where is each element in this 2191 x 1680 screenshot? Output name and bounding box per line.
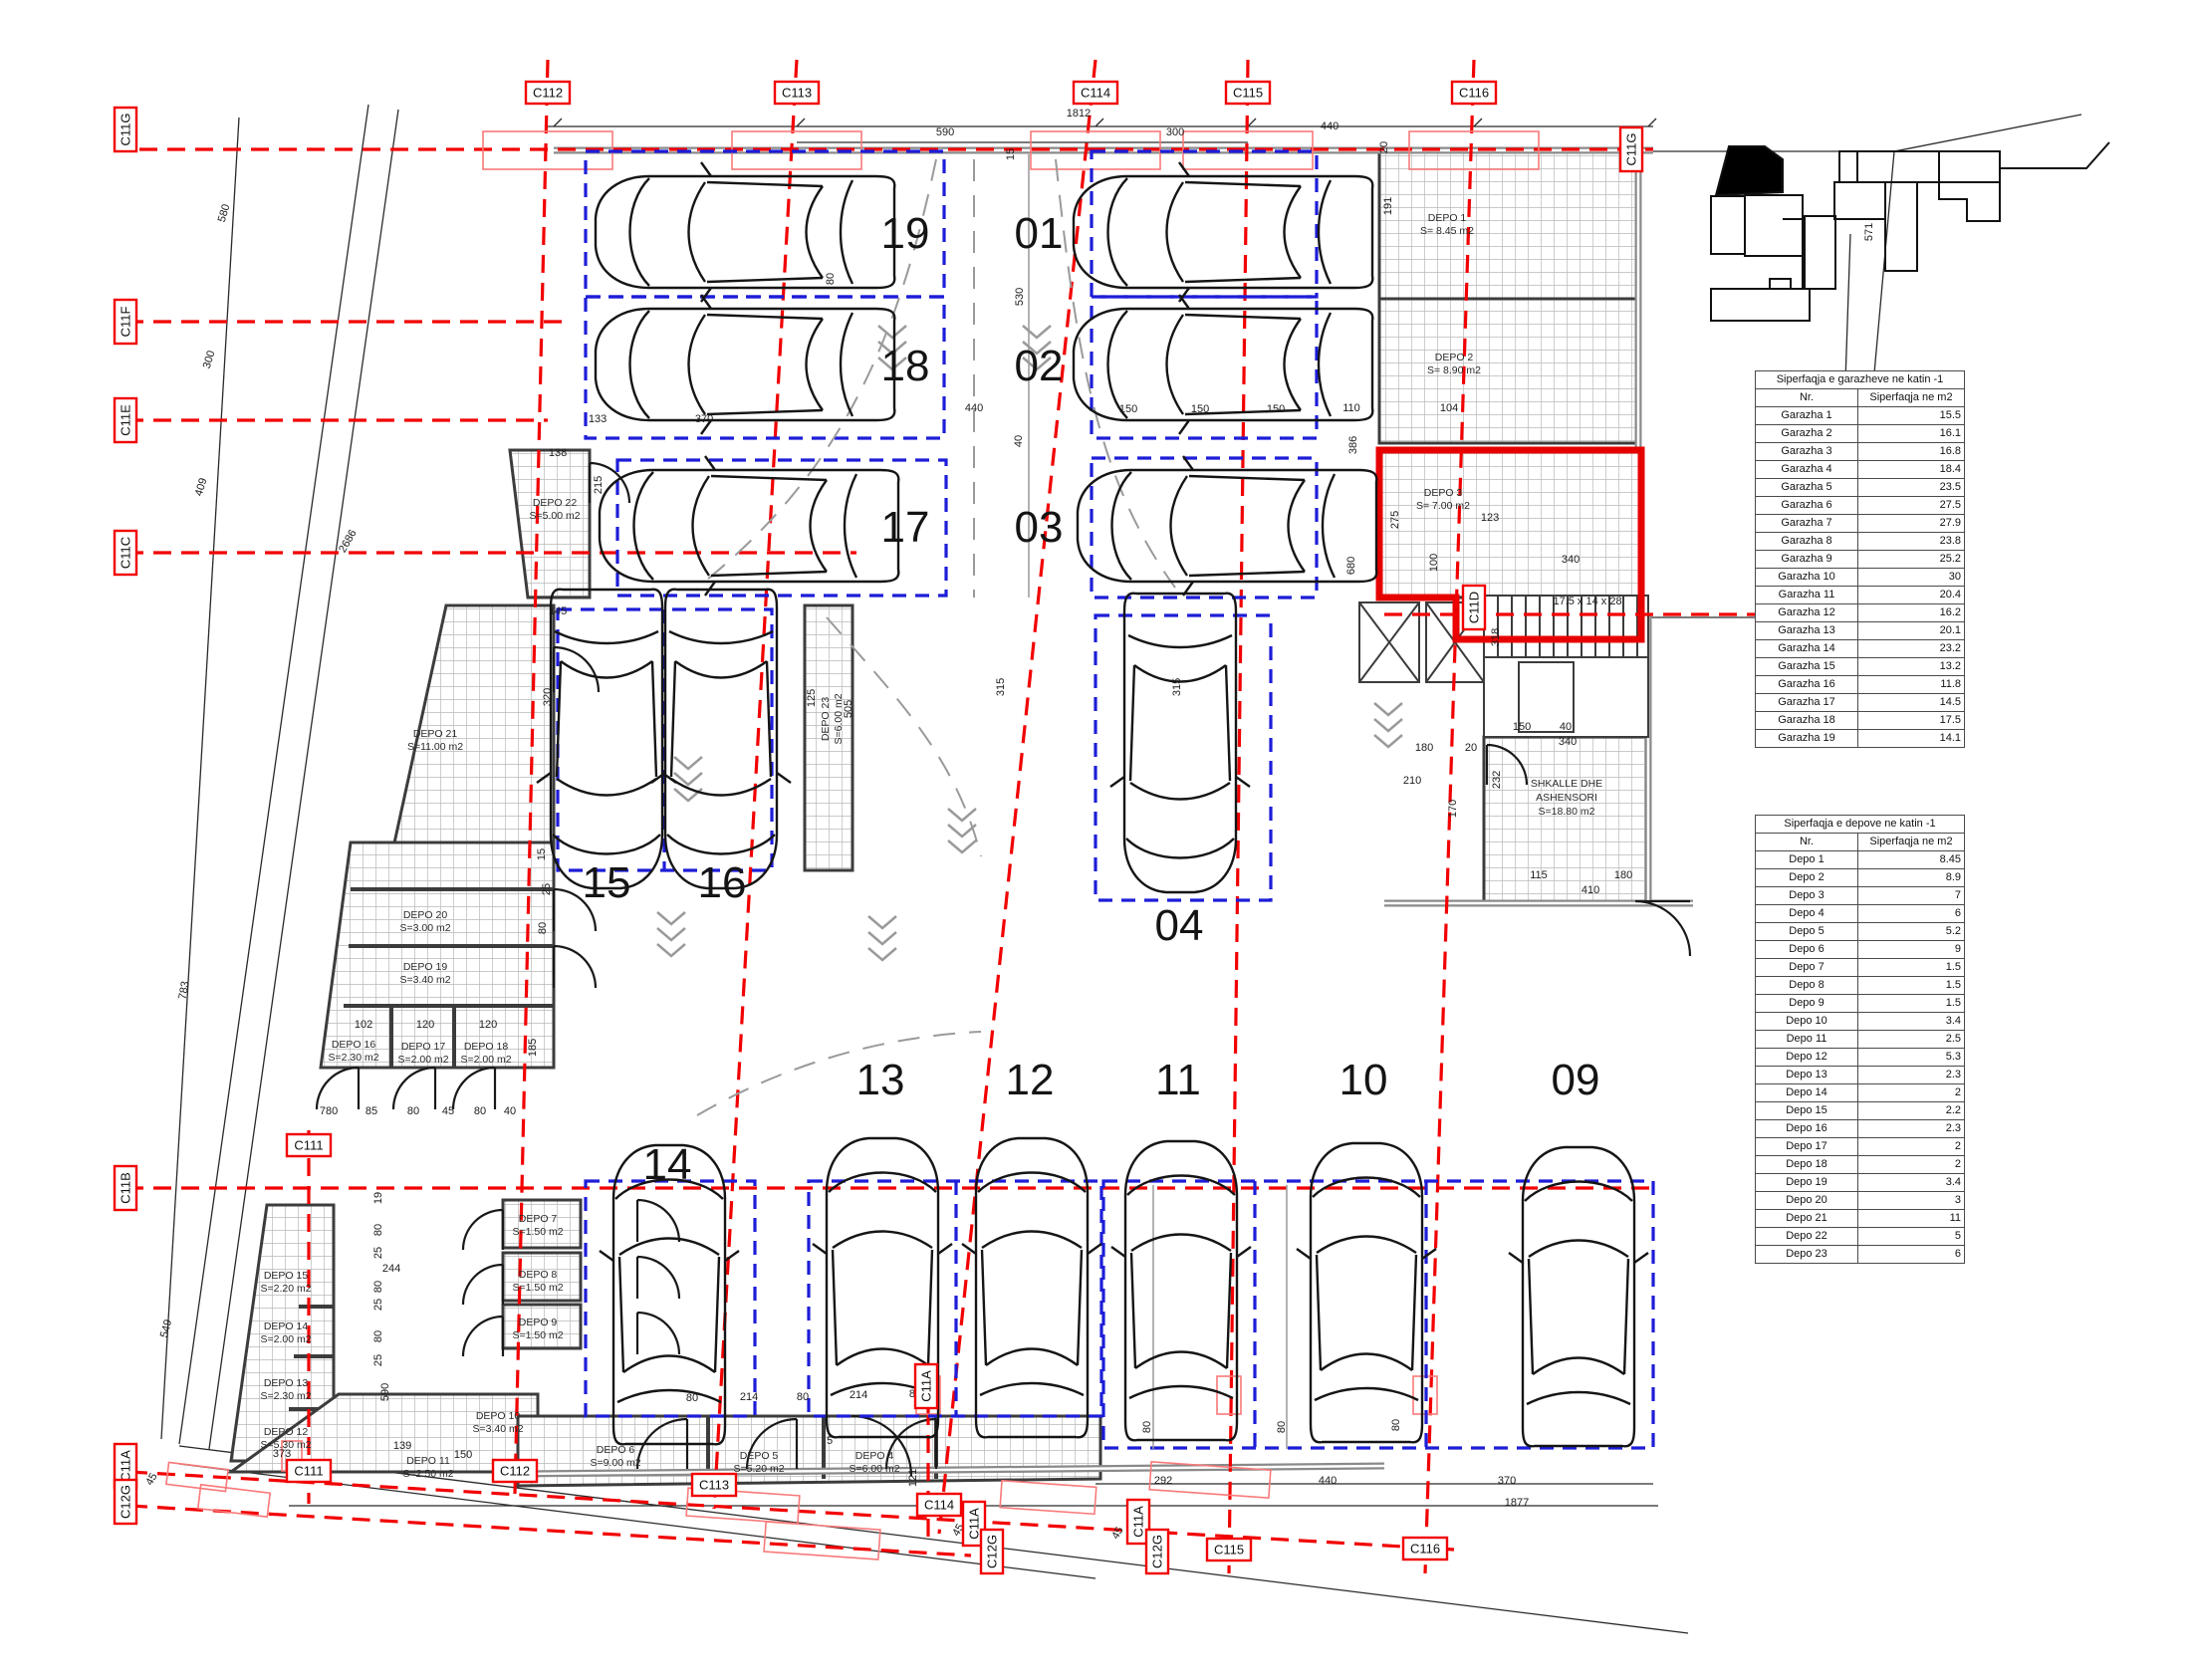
depot-table-row: Depo 203 (1756, 1192, 1965, 1210)
row-area: 2 (1858, 1138, 1965, 1156)
svg-text:C111: C111 (294, 1464, 323, 1479)
parking-space-number: 09 (1552, 1056, 1600, 1104)
dimension-label: 125 (806, 689, 818, 707)
dimension-label: 80 (1390, 1419, 1402, 1431)
garage-area-table: Siperfaqja e garazheve ne katin -1 Nr. S… (1755, 370, 1965, 748)
depot-label: DEPO 4S=6.00 m2 (849, 1450, 899, 1475)
depot-table-row: Depo 55.2 (1756, 923, 1965, 941)
svg-text:C111: C111 (294, 1138, 323, 1153)
svg-text:S=2.00 m2: S=2.00 m2 (260, 1333, 311, 1345)
dimension-label: 45 (1109, 1525, 1126, 1542)
row-nr: Depo 9 (1756, 995, 1858, 1013)
row-nr: Depo 18 (1756, 1156, 1858, 1174)
row-nr: Garazha 12 (1756, 604, 1858, 622)
row-area: 7 (1858, 887, 1965, 905)
grid-marker: C11B (115, 1166, 136, 1210)
row-area: 5.2 (1858, 923, 1965, 941)
svg-text:C11A: C11A (1131, 1506, 1146, 1538)
parking-space-number: 03 (1015, 503, 1064, 552)
svg-text:DEPO 14: DEPO 14 (264, 1320, 309, 1332)
dimension-label: 780 (320, 1105, 338, 1117)
dimension-label: 1877 (1505, 1497, 1529, 1509)
svg-text:DEPO 22: DEPO 22 (533, 497, 578, 509)
dimension-label: 530 (1014, 288, 1026, 306)
dimension-label: 340 (1562, 554, 1580, 566)
depot-table-row: Depo 225 (1756, 1228, 1965, 1246)
row-nr: Garazha 18 (1756, 712, 1858, 730)
dimension-label: 300 (1166, 126, 1184, 138)
garage-table-row: Garazha 216.1 (1756, 425, 1965, 443)
dimension-label: 80 (686, 1392, 698, 1404)
svg-text:DEPO 12: DEPO 12 (264, 1426, 309, 1438)
dimension-label: 15 (536, 848, 548, 860)
car-top-view (651, 590, 791, 888)
dimension-label: 185 (527, 1039, 539, 1057)
row-area: 9 (1858, 941, 1965, 959)
drive-lane-guides (697, 159, 1175, 1115)
depot-table-row: Depo 37 (1756, 887, 1965, 905)
row-area: 13.2 (1858, 658, 1965, 676)
dimension-label: 590 (379, 1383, 391, 1401)
dimension-label: 680 (1345, 557, 1357, 575)
svg-text:C115: C115 (1233, 86, 1263, 101)
depot-label: DEPO 16S=2.30 m2 (328, 1039, 378, 1064)
grid-marker: C11D (1463, 586, 1485, 629)
row-nr: Depo 19 (1756, 1174, 1858, 1192)
depot-label: DEPO 10S=3.40 m2 (472, 1410, 523, 1435)
row-area: 2 (1858, 1156, 1965, 1174)
row-area: 2.2 (1858, 1102, 1965, 1120)
dimension-label: 85 (365, 1105, 377, 1117)
row-area: 5.3 (1858, 1049, 1965, 1067)
svg-text:C116: C116 (1410, 1542, 1440, 1557)
dimension-label: 370 (695, 413, 713, 425)
depot-table-row: Depo 28.9 (1756, 869, 1965, 887)
dimension-label: 120 (416, 1019, 434, 1031)
row-area: 16.2 (1858, 604, 1965, 622)
svg-text:C112: C112 (533, 86, 563, 101)
depot-table-col-area: Siperfaqja ne m2 (1858, 834, 1965, 851)
svg-text:S=2.20 m2: S=2.20 m2 (260, 1283, 311, 1295)
dimension-label: 292 (1154, 1475, 1172, 1487)
garage-table-row: Garazha 727.9 (1756, 515, 1965, 533)
dimension-label: 80 (1276, 1421, 1288, 1433)
row-nr: Garazha 5 (1756, 479, 1858, 497)
grid-marker: C11G (1620, 127, 1642, 171)
row-area: 3.4 (1858, 1174, 1965, 1192)
depot-table-row: Depo 18.45 (1756, 851, 1965, 869)
depot-label: DEPO 19S=3.40 m2 (399, 961, 450, 986)
dimension-label: 25 (372, 1354, 384, 1366)
depot-label: DEPO 11S=2.50 m2 (402, 1455, 453, 1480)
row-area: 27.9 (1858, 515, 1965, 533)
svg-text:DEPO 13: DEPO 13 (264, 1377, 309, 1389)
dimension-label: 214 (850, 1389, 867, 1401)
row-nr: Garazha 4 (1756, 461, 1858, 479)
row-nr: Garazha 2 (1756, 425, 1858, 443)
depot-table-row: Depo 81.5 (1756, 977, 1965, 995)
dimension-label: 150 (1513, 721, 1531, 733)
parking-space-number: 12 (1006, 1056, 1055, 1104)
dimension-label: 180 (1614, 869, 1632, 881)
stair-core-label: ASHENSORI (1536, 792, 1597, 804)
dimension-label: 590 (936, 126, 954, 138)
grid-marker: C115 (1207, 1539, 1251, 1560)
dimension-label: 80 (372, 1224, 384, 1236)
svg-text:C114: C114 (1081, 86, 1110, 101)
row-nr: Depo 14 (1756, 1084, 1858, 1102)
grid-marker: C114 (1074, 82, 1117, 104)
car-top-view (600, 1145, 739, 1444)
car-top-view (1509, 1147, 1648, 1446)
stair-core (1359, 596, 1648, 737)
depot-label: DEPO 22S=5.00 m2 (529, 497, 580, 522)
row-area: 3 (1858, 1192, 1965, 1210)
svg-text:S=2.50 m2: S=2.50 m2 (402, 1468, 453, 1480)
grid-marker: C112 (526, 82, 570, 104)
depot-label: DEPO 1S= 8.45 m2 (1420, 212, 1474, 237)
depot-label: DEPO 14S=2.00 m2 (260, 1320, 311, 1345)
svg-text:S=5.00 m2: S=5.00 m2 (529, 510, 580, 522)
svg-text:S=2.30 m2: S=2.30 m2 (328, 1052, 378, 1064)
dimension-label: 45 (442, 1105, 454, 1117)
dimension-label: 19 (372, 1192, 384, 1204)
garage-table-row: Garazha 316.8 (1756, 443, 1965, 461)
dimension-label: 102 (355, 1019, 372, 1031)
svg-text:DEPO 21: DEPO 21 (413, 728, 458, 740)
dimension-label: 318 (1490, 628, 1502, 646)
garage-table-row: Garazha 418.4 (1756, 461, 1965, 479)
depot-table-row: Depo 125.3 (1756, 1049, 1965, 1067)
garage-table-row: Garazha 925.2 (1756, 551, 1965, 569)
garage-table-row: Garazha 1513.2 (1756, 658, 1965, 676)
lane-divider-lines (1029, 154, 1287, 1449)
svg-text:C115: C115 (1214, 1543, 1244, 1558)
dimension-label: 320 (542, 688, 554, 706)
dimension-label: 440 (965, 402, 983, 414)
row-nr: Depo 7 (1756, 959, 1858, 977)
floor-plan-sheet: 1812590300440133370440150150150110104530… (0, 0, 2191, 1680)
row-area: 3.4 (1858, 1013, 1965, 1031)
dimension-label: 120 (479, 1019, 497, 1031)
svg-text:DEPO 16: DEPO 16 (332, 1039, 376, 1051)
row-area: 30 (1858, 569, 1965, 587)
svg-text:DEPO 9: DEPO 9 (519, 1317, 558, 1328)
svg-text:C11A: C11A (919, 1370, 934, 1402)
depot-table-col-nr: Nr. (1756, 834, 1858, 851)
grid-marker: C113 (692, 1474, 736, 1496)
row-area: 18.4 (1858, 461, 1965, 479)
depot-table-row: Depo 152.2 (1756, 1102, 1965, 1120)
row-area: 2.3 (1858, 1067, 1965, 1084)
parking-space-number: 17 (881, 503, 930, 552)
car-top-view (1111, 1141, 1251, 1440)
row-area: 11 (1858, 1210, 1965, 1228)
parking-space-number: 14 (643, 1140, 692, 1189)
depot-table-row: Depo 172 (1756, 1138, 1965, 1156)
svg-text:DEPO 23: DEPO 23 (820, 697, 832, 742)
row-nr: Garazha 11 (1756, 587, 1858, 604)
dimension-label: 244 (382, 1263, 400, 1275)
dimension-label: 2686 (337, 528, 360, 555)
parking-space-number: 15 (583, 858, 631, 907)
svg-text:C12G: C12G (119, 1485, 133, 1519)
svg-text:S=1.50 m2: S=1.50 m2 (512, 1226, 563, 1238)
car-top-view (1078, 456, 1376, 596)
svg-text:S=6.00 m2: S=6.00 m2 (833, 693, 845, 744)
svg-text:DEPO 15: DEPO 15 (264, 1270, 309, 1282)
svg-text:C11E: C11E (119, 404, 133, 436)
depot-table-row: Depo 46 (1756, 905, 1965, 923)
svg-text:DEPO 7: DEPO 7 (519, 1213, 558, 1225)
svg-text:DEPO 11: DEPO 11 (406, 1455, 450, 1467)
garage-table-row: Garazha 1120.4 (1756, 587, 1965, 604)
grid-marker: C116 (1403, 1538, 1447, 1560)
row-area: 1.5 (1858, 995, 1965, 1013)
dimension-label: 440 (1319, 1475, 1337, 1487)
row-nr: Depo 2 (1756, 869, 1858, 887)
row-nr: Garazha 7 (1756, 515, 1858, 533)
svg-text:S= 8.45 m2: S= 8.45 m2 (1420, 225, 1474, 237)
row-area: 6 (1858, 905, 1965, 923)
grid-marker: C114 (917, 1494, 961, 1516)
dimension-label: 25 (372, 1247, 384, 1259)
row-area: 6 (1858, 1246, 1965, 1264)
dimension-label: 20 (1378, 141, 1390, 153)
row-nr: Garazha 6 (1756, 497, 1858, 515)
garage-table-row: Garazha 823.8 (1756, 533, 1965, 551)
depot-label: DEPO 2S= 8.90 m2 (1427, 352, 1481, 376)
svg-text:S=3.40 m2: S=3.40 m2 (472, 1423, 523, 1435)
depot-table-row: Depo 182 (1756, 1156, 1965, 1174)
stair-core-label: SHKALLE DHE (1531, 778, 1602, 790)
depot-table-row: Depo 2111 (1756, 1210, 1965, 1228)
svg-text:S=1.50 m2: S=1.50 m2 (512, 1282, 563, 1294)
row-area: 8.45 (1858, 851, 1965, 869)
dimension-label: 370 (1498, 1475, 1516, 1487)
row-nr: Garazha 1 (1756, 407, 1858, 425)
dimension-label: 25 (372, 1299, 384, 1311)
car-top-view (962, 1138, 1101, 1437)
svg-text:S=1.50 m2: S=1.50 m2 (512, 1329, 563, 1341)
svg-text:DEPO 4: DEPO 4 (855, 1450, 894, 1462)
row-nr: Garazha 13 (1756, 622, 1858, 640)
grid-marker: C11A (915, 1364, 937, 1408)
depot-table-row: Depo 162.3 (1756, 1120, 1965, 1138)
dimension-label: 1812 (1067, 108, 1091, 120)
dimension-label: 17.5 x 14 x 28 (1553, 596, 1621, 607)
dimension-label: 100 (1428, 554, 1440, 572)
grid-marker: C11E (115, 398, 136, 442)
row-area: 23.5 (1858, 479, 1965, 497)
dimension-label: 232 (1491, 771, 1503, 789)
dimension-label: 150 (454, 1449, 472, 1461)
dimension-label: 40 (1560, 721, 1572, 733)
grid-marker: C112 (493, 1460, 537, 1482)
svg-text:C11B: C11B (119, 1172, 133, 1204)
row-area: 11.8 (1858, 676, 1965, 694)
row-area: 20.1 (1858, 622, 1965, 640)
row-area: 2.5 (1858, 1031, 1965, 1049)
row-area: 15.5 (1858, 407, 1965, 425)
garage-table-row: Garazha 523.5 (1756, 479, 1965, 497)
depot-label: DEPO 13S=2.30 m2 (260, 1377, 311, 1402)
row-nr: Depo 16 (1756, 1120, 1858, 1138)
dimension-label: 5 (827, 1435, 833, 1447)
dimension-label: 180 (1415, 742, 1433, 754)
row-area: 2.3 (1858, 1120, 1965, 1138)
svg-text:S= 8.90 m2: S= 8.90 m2 (1427, 364, 1481, 376)
depot-label: DEPO 12S=5.30 m2 (260, 1426, 311, 1451)
svg-text:S=9.00 m2: S=9.00 m2 (590, 1457, 640, 1469)
row-nr: Depo 15 (1756, 1102, 1858, 1120)
row-nr: Depo 17 (1756, 1138, 1858, 1156)
row-nr: Depo 22 (1756, 1228, 1858, 1246)
garage-table-row: Garazha 627.5 (1756, 497, 1965, 515)
dimension-label: 80 (372, 1281, 384, 1293)
grid-marker: C11G (115, 108, 136, 151)
garage-table-row: Garazha 1423.2 (1756, 640, 1965, 658)
dimension-label: 110 (1342, 402, 1360, 414)
svg-text:S=2.30 m2: S=2.30 m2 (260, 1390, 311, 1402)
svg-text:C11A: C11A (967, 1508, 982, 1540)
dimension-label: 150 (1267, 403, 1285, 415)
svg-text:C116: C116 (1459, 86, 1489, 101)
dimension-label: 138 (549, 447, 567, 459)
depot-table-row: Depo 103.4 (1756, 1013, 1965, 1031)
depot-label: DEPO 21S=11.00 m2 (407, 728, 463, 753)
grid-marker: C12G (981, 1530, 1003, 1573)
row-area: 2 (1858, 1084, 1965, 1102)
dimension-label: 214 (740, 1391, 758, 1403)
parking-space-number: 11 (1155, 1056, 1201, 1104)
grid-marker: C111 (287, 1460, 331, 1482)
dimension-label: 386 (1347, 436, 1359, 454)
svg-text:DEPO 3: DEPO 3 (1424, 487, 1463, 499)
dimension-label: 133 (589, 413, 607, 425)
stair-core-label: S=18.80 m2 (1539, 806, 1595, 818)
svg-text:S=6.00 m2: S=6.00 m2 (849, 1463, 899, 1475)
garage-table-row: Garazha 1030 (1756, 569, 1965, 587)
row-nr: Garazha 10 (1756, 569, 1858, 587)
depot-table-row: Depo 236 (1756, 1246, 1965, 1264)
svg-text:C113: C113 (699, 1478, 729, 1493)
dimension-label: 123 (1481, 512, 1499, 524)
parking-space-number: 02 (1015, 342, 1064, 390)
depot-table-row: Depo 71.5 (1756, 959, 1965, 977)
dimension-label: 191 (1382, 197, 1394, 215)
depot-label: DEPO 6S=9.00 m2 (590, 1444, 640, 1469)
row-area: 16.1 (1858, 425, 1965, 443)
svg-text:DEPO 6: DEPO 6 (597, 1444, 635, 1456)
car-top-view (1110, 594, 1250, 892)
svg-text:DEPO 17: DEPO 17 (401, 1041, 446, 1053)
dimension-label: 215 (593, 476, 605, 494)
dimension-label: 210 (1403, 775, 1421, 787)
row-nr: Garazha 16 (1756, 676, 1858, 694)
row-nr: Garazha 15 (1756, 658, 1858, 676)
depot-label: DEPO 5S=5.20 m2 (733, 1450, 784, 1475)
row-area: 16.8 (1858, 443, 1965, 461)
row-area: 27.5 (1858, 497, 1965, 515)
svg-text:DEPO 19: DEPO 19 (403, 961, 448, 973)
svg-text:DEPO 5: DEPO 5 (740, 1450, 779, 1462)
depot-label: DEPO 3S= 7.00 m2 (1416, 487, 1470, 512)
svg-text:S=11.00 m2: S=11.00 m2 (407, 741, 463, 753)
garage-table-row: Garazha 115.5 (1756, 407, 1965, 425)
grid-marker: C116 (1452, 82, 1496, 104)
depot-table-row: Depo 142 (1756, 1084, 1965, 1102)
row-nr: Depo 3 (1756, 887, 1858, 905)
svg-text:S=5.30 m2: S=5.30 m2 (260, 1439, 311, 1451)
row-area: 25.2 (1858, 551, 1965, 569)
row-nr: Depo 6 (1756, 941, 1858, 959)
svg-text:C11C: C11C (119, 537, 133, 569)
depot-table-row: Depo 91.5 (1756, 995, 1965, 1013)
dimension-label: 139 (393, 1440, 411, 1452)
dimension-label: 121 (907, 1469, 919, 1487)
svg-text:DEPO 18: DEPO 18 (464, 1041, 509, 1053)
svg-text:C114: C114 (924, 1498, 954, 1513)
dimension-label: 20 (1465, 742, 1477, 754)
depot-label: DEPO 9S=1.50 m2 (512, 1317, 563, 1341)
dimension-label: 409 (193, 477, 210, 498)
depot-label: DEPO 20S=3.00 m2 (399, 909, 450, 934)
garage-table-row: Garazha 1817.5 (1756, 712, 1965, 730)
garage-table-row: Garazha 1714.5 (1756, 694, 1965, 712)
svg-text:DEPO 2: DEPO 2 (1435, 352, 1474, 363)
stair-label-layer: SHKALLE DHEASHENSORIS=18.80 m2 (1531, 778, 1602, 818)
row-nr: Garazha 8 (1756, 533, 1858, 551)
garage-table-row: Garazha 1914.1 (1756, 730, 1965, 748)
parking-space-number: 04 (1155, 901, 1204, 950)
dimension-label: 25 (541, 883, 553, 895)
depot-label: DEPO 17S=2.00 m2 (397, 1041, 448, 1066)
parking-space-number: 16 (698, 858, 747, 907)
parking-space-number: 18 (881, 342, 930, 390)
row-area: 1.5 (1858, 959, 1965, 977)
dimension-label: 80 (474, 1105, 486, 1117)
row-area: 20.4 (1858, 587, 1965, 604)
row-area: 8.9 (1858, 869, 1965, 887)
row-nr: Depo 4 (1756, 905, 1858, 923)
grid-marker: C113 (775, 82, 819, 104)
dimension-label: 580 (216, 203, 233, 224)
row-area: 1.5 (1858, 977, 1965, 995)
row-nr: Depo 10 (1756, 1013, 1858, 1031)
car-top-view (600, 456, 898, 596)
garage-table-title: Siperfaqja e garazheve ne katin -1 (1756, 371, 1965, 389)
dimension-label: 150 (1119, 403, 1137, 415)
depot-label: DEPO 7S=1.50 m2 (512, 1213, 563, 1238)
grid-marker: C11C (115, 531, 136, 575)
svg-text:S=2.00 m2: S=2.00 m2 (460, 1054, 511, 1066)
grid-marker: C111 (287, 1134, 331, 1156)
row-nr: Garazha 19 (1756, 730, 1858, 748)
car-top-view (596, 162, 894, 302)
depot-table-row: Depo 132.3 (1756, 1067, 1965, 1084)
parking-space-number: 13 (856, 1056, 905, 1104)
dimension-label: 145 (549, 605, 567, 617)
svg-text:C11G: C11G (1624, 133, 1639, 166)
depot-label: DEPO 18S=2.00 m2 (460, 1041, 511, 1066)
depot-label: DEPO 8S=1.50 m2 (512, 1269, 563, 1294)
dimension-label: 115 (1530, 869, 1548, 881)
dimension-label: 80 (797, 1391, 809, 1403)
grid-marker: C115 (1226, 82, 1270, 104)
grid-marker: C12G (115, 1480, 136, 1524)
svg-text:DEPO 8: DEPO 8 (519, 1269, 558, 1281)
